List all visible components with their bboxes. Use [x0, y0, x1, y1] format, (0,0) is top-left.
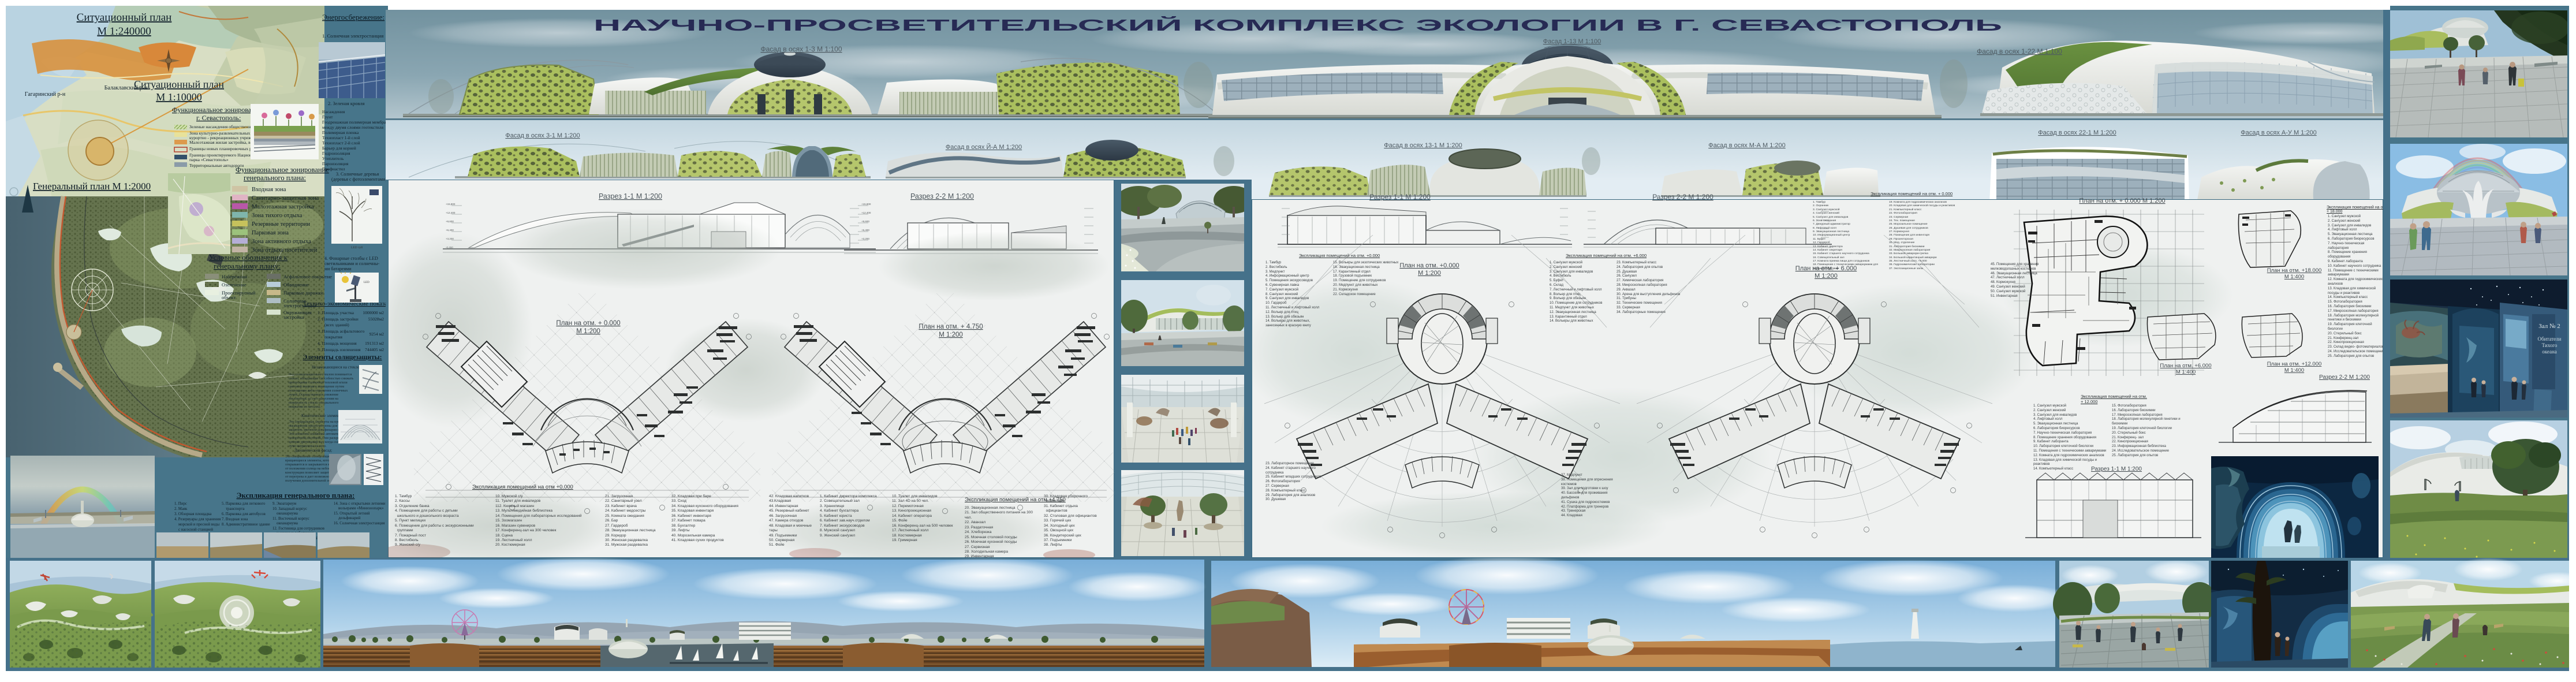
svg-text:15. Открытый летний: 15. Открытый летний — [334, 512, 370, 516]
svg-text:генерального плана:: генерального плана: — [244, 174, 306, 182]
svg-text:(всех зданий): (всех зданий) — [324, 322, 349, 327]
svg-text:г. Севастополь:: г. Севастополь: — [196, 114, 241, 122]
svg-text:4. Резервуары для хранения: 4. Резервуары для хранения — [174, 517, 221, 521]
svg-text:Санитарно-защитная зона: Санитарно-защитная зона — [252, 195, 319, 202]
svg-text:Утеплитель: Утеплитель — [322, 156, 344, 161]
svg-text:55028м2: 55028м2 — [368, 316, 384, 322]
svg-text:+9,600: +9,600 — [446, 220, 454, 223]
svg-text:+9,600: +9,600 — [861, 220, 869, 223]
svg-text:лучей. Осуществляется снижение: лучей. Осуществляется снижение — [289, 393, 339, 397]
svg-text:3. Площадь асфальтового: 3. Площадь асфальтового — [318, 329, 365, 334]
svg-text:+15,800: +15,800 — [861, 203, 871, 206]
svg-text:поверхность стекла специальног: поверхность стекла специального — [289, 401, 339, 405]
svg-text:вольерами «Минизоопарк»: вольерами «Минизоопарк» — [338, 506, 384, 510]
svg-text:Фасад в осях 1-22 М 1:100: Фасад в осях 1-22 М 1:100 — [1977, 47, 2062, 55]
svg-text:План на отм. +18.000: План на отм. +18.000 — [2267, 267, 2322, 274]
svg-text:светильниками и солнечны-: светильниками и солнечны- — [324, 261, 380, 266]
svg-text:Полимерная пленка: Полимерная пленка — [322, 130, 359, 135]
svg-text:Зона тихого отдыха: Зона тихого отдыха — [252, 213, 303, 219]
svg-text:генеральному плану:: генеральному плану: — [214, 262, 281, 270]
svg-text:М 1:400: М 1:400 — [2176, 369, 2196, 375]
svg-text:океанариума: океанариума — [277, 521, 298, 526]
svg-text:Динамический фасад:: Динамический фасад: — [294, 448, 333, 453]
svg-text:Фасад 1-13 М 1:100: Фасад 1-13 М 1:100 — [1543, 38, 1601, 45]
svg-text:стекло, обладающее способность: стекло, обладающее способностью снижать — [289, 377, 354, 381]
svg-text:Асфальтовое покрытие: Асфальтовое покрытие — [283, 274, 332, 279]
svg-text:Профнастил: Профнастил — [322, 166, 345, 172]
svg-text:Фасад в осях 22-1 М 1:200: Фасад в осях 22-1 М 1:200 — [2038, 129, 2116, 136]
svg-text:1000000 м2: 1000000 м2 — [363, 310, 384, 315]
svg-text:Парковая зона: Парковая зона — [252, 230, 289, 236]
svg-text:Парковые дорожки: Парковые дорожки — [283, 290, 324, 296]
svg-text:План на отм. +0.000: План на отм. +0.000 — [1399, 262, 1459, 269]
svg-text:(деревья с фотоэлементами): (деревья с фотоэлементами) — [331, 177, 386, 182]
svg-text:16. Солнечная электростанция: 16. Солнечная электростанция — [334, 521, 384, 526]
svg-text:Разрез 1-1 М 1:200: Разрез 1-1 М 1:200 — [599, 192, 662, 200]
svg-text:световой энергии в помещение п: световой энергии в помещение путем — [289, 385, 344, 389]
svg-text:морской и пресной воды: морской и пресной воды — [178, 523, 220, 527]
svg-text:Обводнение: Обводнение — [283, 282, 309, 288]
svg-text:М 1:400: М 1:400 — [2284, 367, 2304, 374]
svg-text:9254 м2: 9254 м2 — [369, 331, 384, 337]
svg-text:3. Солнечные деревья: 3. Солнечные деревья — [336, 172, 379, 177]
svg-text:9. Экоатариум: 9. Экоатариум — [272, 502, 297, 506]
svg-text:+3,200: +3,200 — [861, 237, 869, 240]
svg-text:8. Административное здание: 8. Административное здание — [222, 523, 270, 527]
svg-text:парка «Севастополь»: парка «Севастополь» — [189, 157, 229, 162]
svg-text:Под солнцезащитным стеклом пон: Под солнцезащитным стеклом понимается — [289, 373, 352, 377]
svg-text:5. Площадь озеленения: 5. Площадь озеленения — [318, 347, 361, 352]
svg-text:М 1:10000: М 1:10000 — [156, 91, 202, 103]
svg-text:Незамокающиеся на стекло:: Незамокающиеся на стекло: — [312, 365, 360, 370]
svg-text:План на отм. + 4.750: План на отм. + 4.750 — [919, 323, 983, 330]
svg-text:Ситуационный план: Ситуационный план — [134, 79, 224, 90]
svg-text:Генеральный план М 1:2000: Генеральный план М 1:2000 — [33, 181, 151, 192]
svg-text:Гагаринский р-н: Гагаринский р-н — [25, 91, 66, 98]
svg-text:1. Пирс: 1. Пирс — [174, 502, 187, 506]
svg-text:покрытия: покрытия — [324, 334, 342, 340]
svg-text:Разрез 2-2 М 1:200: Разрез 2-2 М 1:200 — [2319, 374, 2370, 381]
svg-text:М 1:200: М 1:200 — [1815, 273, 1838, 279]
svg-text:План на отм. + 0.000: План на отм. + 0.000 — [556, 320, 620, 327]
svg-text:План на отм. +6.000: План на отм. +6.000 — [2160, 363, 2211, 369]
svg-text:Малоэтажная застройка: Малоэтажная застройка — [252, 204, 314, 210]
svg-text:+15,800: +15,800 — [446, 203, 456, 206]
svg-text:6. Парковка для автобусов: 6. Парковка для автобусов — [222, 512, 266, 516]
svg-text:7. Входная зона: 7. Входная зона — [222, 517, 248, 521]
svg-text:Барьер для корней: Барьер для корней — [322, 146, 356, 151]
svg-text:Функциональное зонирование: Функциональное зонирование — [172, 106, 262, 114]
svg-text:+12,400: +12,400 — [446, 211, 456, 214]
svg-text:Функциональное зонирование: Функциональное зонирование — [236, 166, 329, 174]
svg-text:Резервные территории: Резервные территории — [252, 221, 310, 228]
svg-text:Энергосбережение:: Энергосбережение: — [322, 13, 384, 21]
svg-text:Фасад в осях Й-А М 1:200: Фасад в осях Й-А М 1:200 — [946, 143, 1022, 151]
svg-text:Балаклавский р-н: Балаклавский р-н — [104, 85, 148, 91]
svg-text:Условные обозначения к: Условные обозначения к — [209, 253, 288, 262]
svg-text:1. Солнечная электростанция: 1. Солнечная электростанция — [322, 33, 383, 39]
svg-text:объект: объект — [222, 295, 236, 300]
svg-text:2. Площадь застройки: 2. Площадь застройки — [318, 316, 359, 322]
svg-text:+6,400: +6,400 — [446, 229, 454, 232]
svg-text:Тихого: Тихого — [2542, 342, 2558, 348]
svg-text:Насаждения: Насаждения — [322, 109, 345, 114]
svg-text:вращающиеся элементы, которые: вращающиеся элементы, которые — [285, 459, 335, 463]
svg-text:пропускание солнечной тепловой: пропускание солнечной тепловой и/или — [289, 381, 348, 385]
svg-text:транспорта: транспорта — [226, 507, 245, 511]
svg-text:744405 м2: 744405 м2 — [365, 347, 384, 352]
svg-text:Технопласт 2-й слой: Технопласт 2-й слой — [322, 140, 360, 146]
svg-text:Ситуационный план: Ситуационный план — [77, 12, 172, 24]
svg-text:теплопотерь за счет нанесения: теплопотерь за счет нанесения на — [289, 397, 338, 401]
svg-text:Обитатели: Обитатели — [2538, 336, 2562, 342]
svg-text:Фасад в осях 1-3 М 1:100: Фасад в осях 1-3 М 1:100 — [760, 45, 842, 53]
svg-text:НАУЧНО-ПРОСВЕТИТЕЛЬСКИЙ КОМПЛЕ: НАУЧНО-ПРОСВЕТИТЕЛЬСКИЙ КОМПЛЕКС ЭКОЛОГИ… — [593, 16, 2002, 33]
svg-text:океанариума: океанариума — [277, 512, 298, 516]
svg-text:М 1:200: М 1:200 — [1418, 270, 1441, 277]
svg-text:поглощения либо отражения солн: поглощения либо отражения солнечных — [289, 389, 348, 393]
svg-text:Зал № 2: Зал № 2 — [2538, 323, 2560, 330]
svg-text:Элементы солнцезащиты:: Элементы солнцезащиты: — [303, 354, 382, 361]
svg-text:покрытия из металла.: покрытия из металла. — [289, 405, 321, 409]
svg-text:11. Восточный корпус: 11. Восточный корпус — [272, 517, 309, 521]
svg-text:ми батареями: ми батареями — [324, 266, 352, 271]
svg-text:1. Площадь участка: 1. Площадь участка — [318, 310, 354, 315]
svg-text:12. Гостиница для сотрудников: 12. Гостиница для сотрудников — [272, 527, 324, 531]
svg-text:Зона активного отдыха: Зона активного отдыха — [252, 238, 311, 245]
svg-text:LED туй: LED туй — [351, 245, 363, 249]
svg-text:М 1:200: М 1:200 — [576, 328, 600, 335]
svg-text:3. Обзорная площадка: 3. Обзорная площадка — [174, 512, 211, 516]
svg-text:4. Фонарные столбы с LED: 4. Фонарные столбы с LED — [324, 256, 378, 261]
svg-text:План на отм. + 0.000 М 1:200: План на отм. + 0.000 М 1:200 — [2079, 197, 2165, 204]
svg-text:Входная зона: Входная зона — [252, 187, 286, 193]
svg-text:2. Зеленая кровля: 2. Зеленая кровля — [328, 100, 365, 106]
svg-text:Пароизоляция: Пароизоляция — [322, 161, 349, 166]
svg-text:между двумя слоями геотекстиля: между двумя слоями геотекстиля — [322, 125, 384, 130]
svg-text:Геодренажная полимерная мембра: Геодренажная полимерная мембрана — [322, 120, 386, 125]
svg-text:План на отм. +12.000: План на отм. +12.000 — [2267, 361, 2322, 367]
svg-text:10. Западный корпус: 10. Западный корпус — [272, 507, 307, 511]
svg-text:5. Парковка для легкового: 5. Парковка для легкового — [222, 502, 266, 506]
svg-text:Разрез 2-2 М 1:200: Разрез 2-2 М 1:200 — [910, 192, 974, 200]
svg-text:Озеленение: Озеленение — [222, 282, 247, 288]
svg-text:Технопласт 1-й слой: Технопласт 1-й слой — [322, 135, 360, 140]
svg-text:с насосной станцией: с насосной станцией — [178, 528, 213, 532]
svg-text:от перегрева и дает возможност: от перегрева и дает возможность — [285, 475, 334, 479]
svg-text:Набережная: Набережная — [222, 274, 247, 279]
svg-text:океана: океана — [2542, 349, 2557, 355]
svg-text:М 1:200: М 1:200 — [939, 331, 963, 338]
svg-text:Экспликация генерального плана: Экспликация генерального плана: — [237, 491, 355, 500]
svg-text:+12,400: +12,400 — [861, 211, 871, 214]
svg-text:М 1:400: М 1:400 — [2284, 274, 2304, 280]
svg-text:4. Площадь мощения: 4. Площадь мощения — [318, 341, 357, 346]
svg-text:Фасад в осях 13-1 М 1:200: Фасад в осях 13-1 М 1:200 — [1384, 142, 1462, 149]
svg-text:Фасад в осях 3-1 М 1:200: Фасад в осях 3-1 М 1:200 — [505, 132, 580, 139]
svg-text:2. Маяк: 2. Маяк — [174, 507, 188, 511]
svg-text:Фасад в осях А-У М 1:200: Фасад в осях А-У М 1:200 — [2241, 129, 2316, 136]
svg-text:М 1:240000: М 1:240000 — [97, 25, 151, 38]
svg-text:+6,400: +6,400 — [861, 229, 869, 232]
svg-text:Разрез 1-1 М 1:200: Разрез 1-1 М 1:200 — [1369, 193, 1431, 201]
svg-text:14. Зона с открытыми летними: 14. Зона с открытыми летними — [334, 502, 386, 506]
svg-text:LED: LED — [364, 281, 369, 284]
svg-text:Разрез 2-2 М 1:200: Разрез 2-2 М 1:200 — [1652, 193, 1713, 201]
svg-text:Фасад в осях М-А М 1:200: Фасад в осях М-А М 1:200 — [1708, 142, 1786, 149]
svg-text:дельфинарий: дельфинарий — [338, 516, 361, 520]
svg-text:Гидроизоляция: Гидроизоляция — [322, 151, 350, 156]
svg-text:191313 м2: 191313 м2 — [365, 341, 384, 346]
svg-text:Грунт: Грунт — [322, 114, 333, 120]
svg-text:застройка: застройка — [283, 314, 304, 320]
